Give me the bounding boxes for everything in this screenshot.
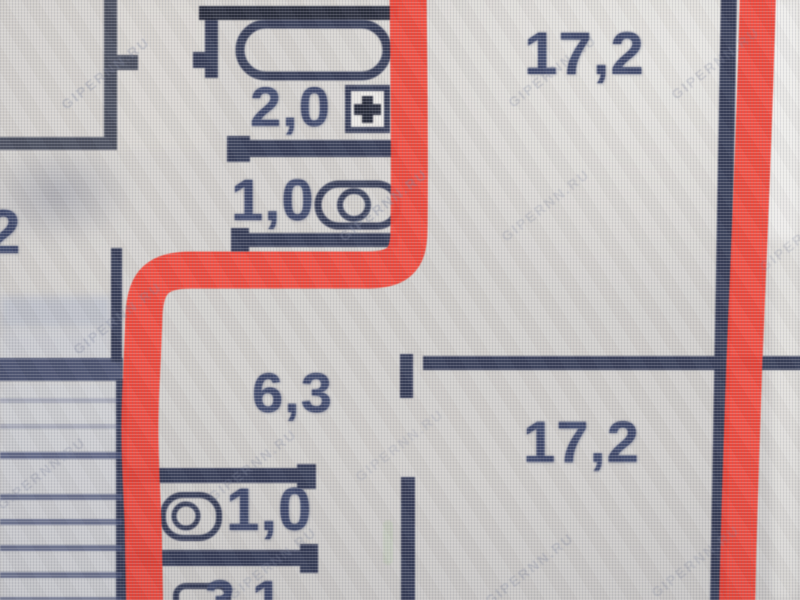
- stair-tread: [0, 494, 122, 500]
- toilet-icon: [340, 191, 368, 219]
- wall: [231, 233, 398, 247]
- wall: [401, 477, 415, 600]
- stair-tread: [0, 398, 120, 403]
- wall: [227, 140, 398, 157]
- wall-stairwell: [111, 248, 122, 362]
- vent-plus-icon: [354, 104, 381, 115]
- sink-icon: [176, 586, 228, 600]
- bathtub-icon: [240, 24, 387, 76]
- wall: [205, 16, 218, 78]
- toilet-icon: [163, 495, 219, 538]
- wall-door-jamb: [117, 55, 138, 70]
- floor-plan-drawing: [0, 0, 800, 600]
- fixtures: [163, 24, 398, 600]
- wall: [0, 137, 117, 150]
- stair-tread: [0, 452, 122, 459]
- stair-tread: [0, 519, 122, 525]
- screen-smudge: [383, 520, 393, 565]
- wall-stair-landing: [0, 358, 123, 381]
- wall: [199, 6, 398, 20]
- highlight-marker-right: [737, 0, 758, 600]
- wall-cap: [300, 544, 318, 573]
- stair-treads: [0, 398, 122, 600]
- stair-tread: [0, 545, 122, 551]
- stair-tread: [0, 572, 122, 578]
- floor-plan-photo: GIPERNN.RU GIPERNN.RU GIPERNN.RU GIPERNN…: [0, 0, 800, 600]
- wall-cap: [297, 464, 316, 489]
- toilet-icon: [174, 504, 198, 528]
- wall: [104, 0, 117, 148]
- highlight-marker-outline: [140, 0, 758, 600]
- stair-tread: [0, 424, 120, 429]
- wall-door-jamb: [400, 354, 413, 398]
